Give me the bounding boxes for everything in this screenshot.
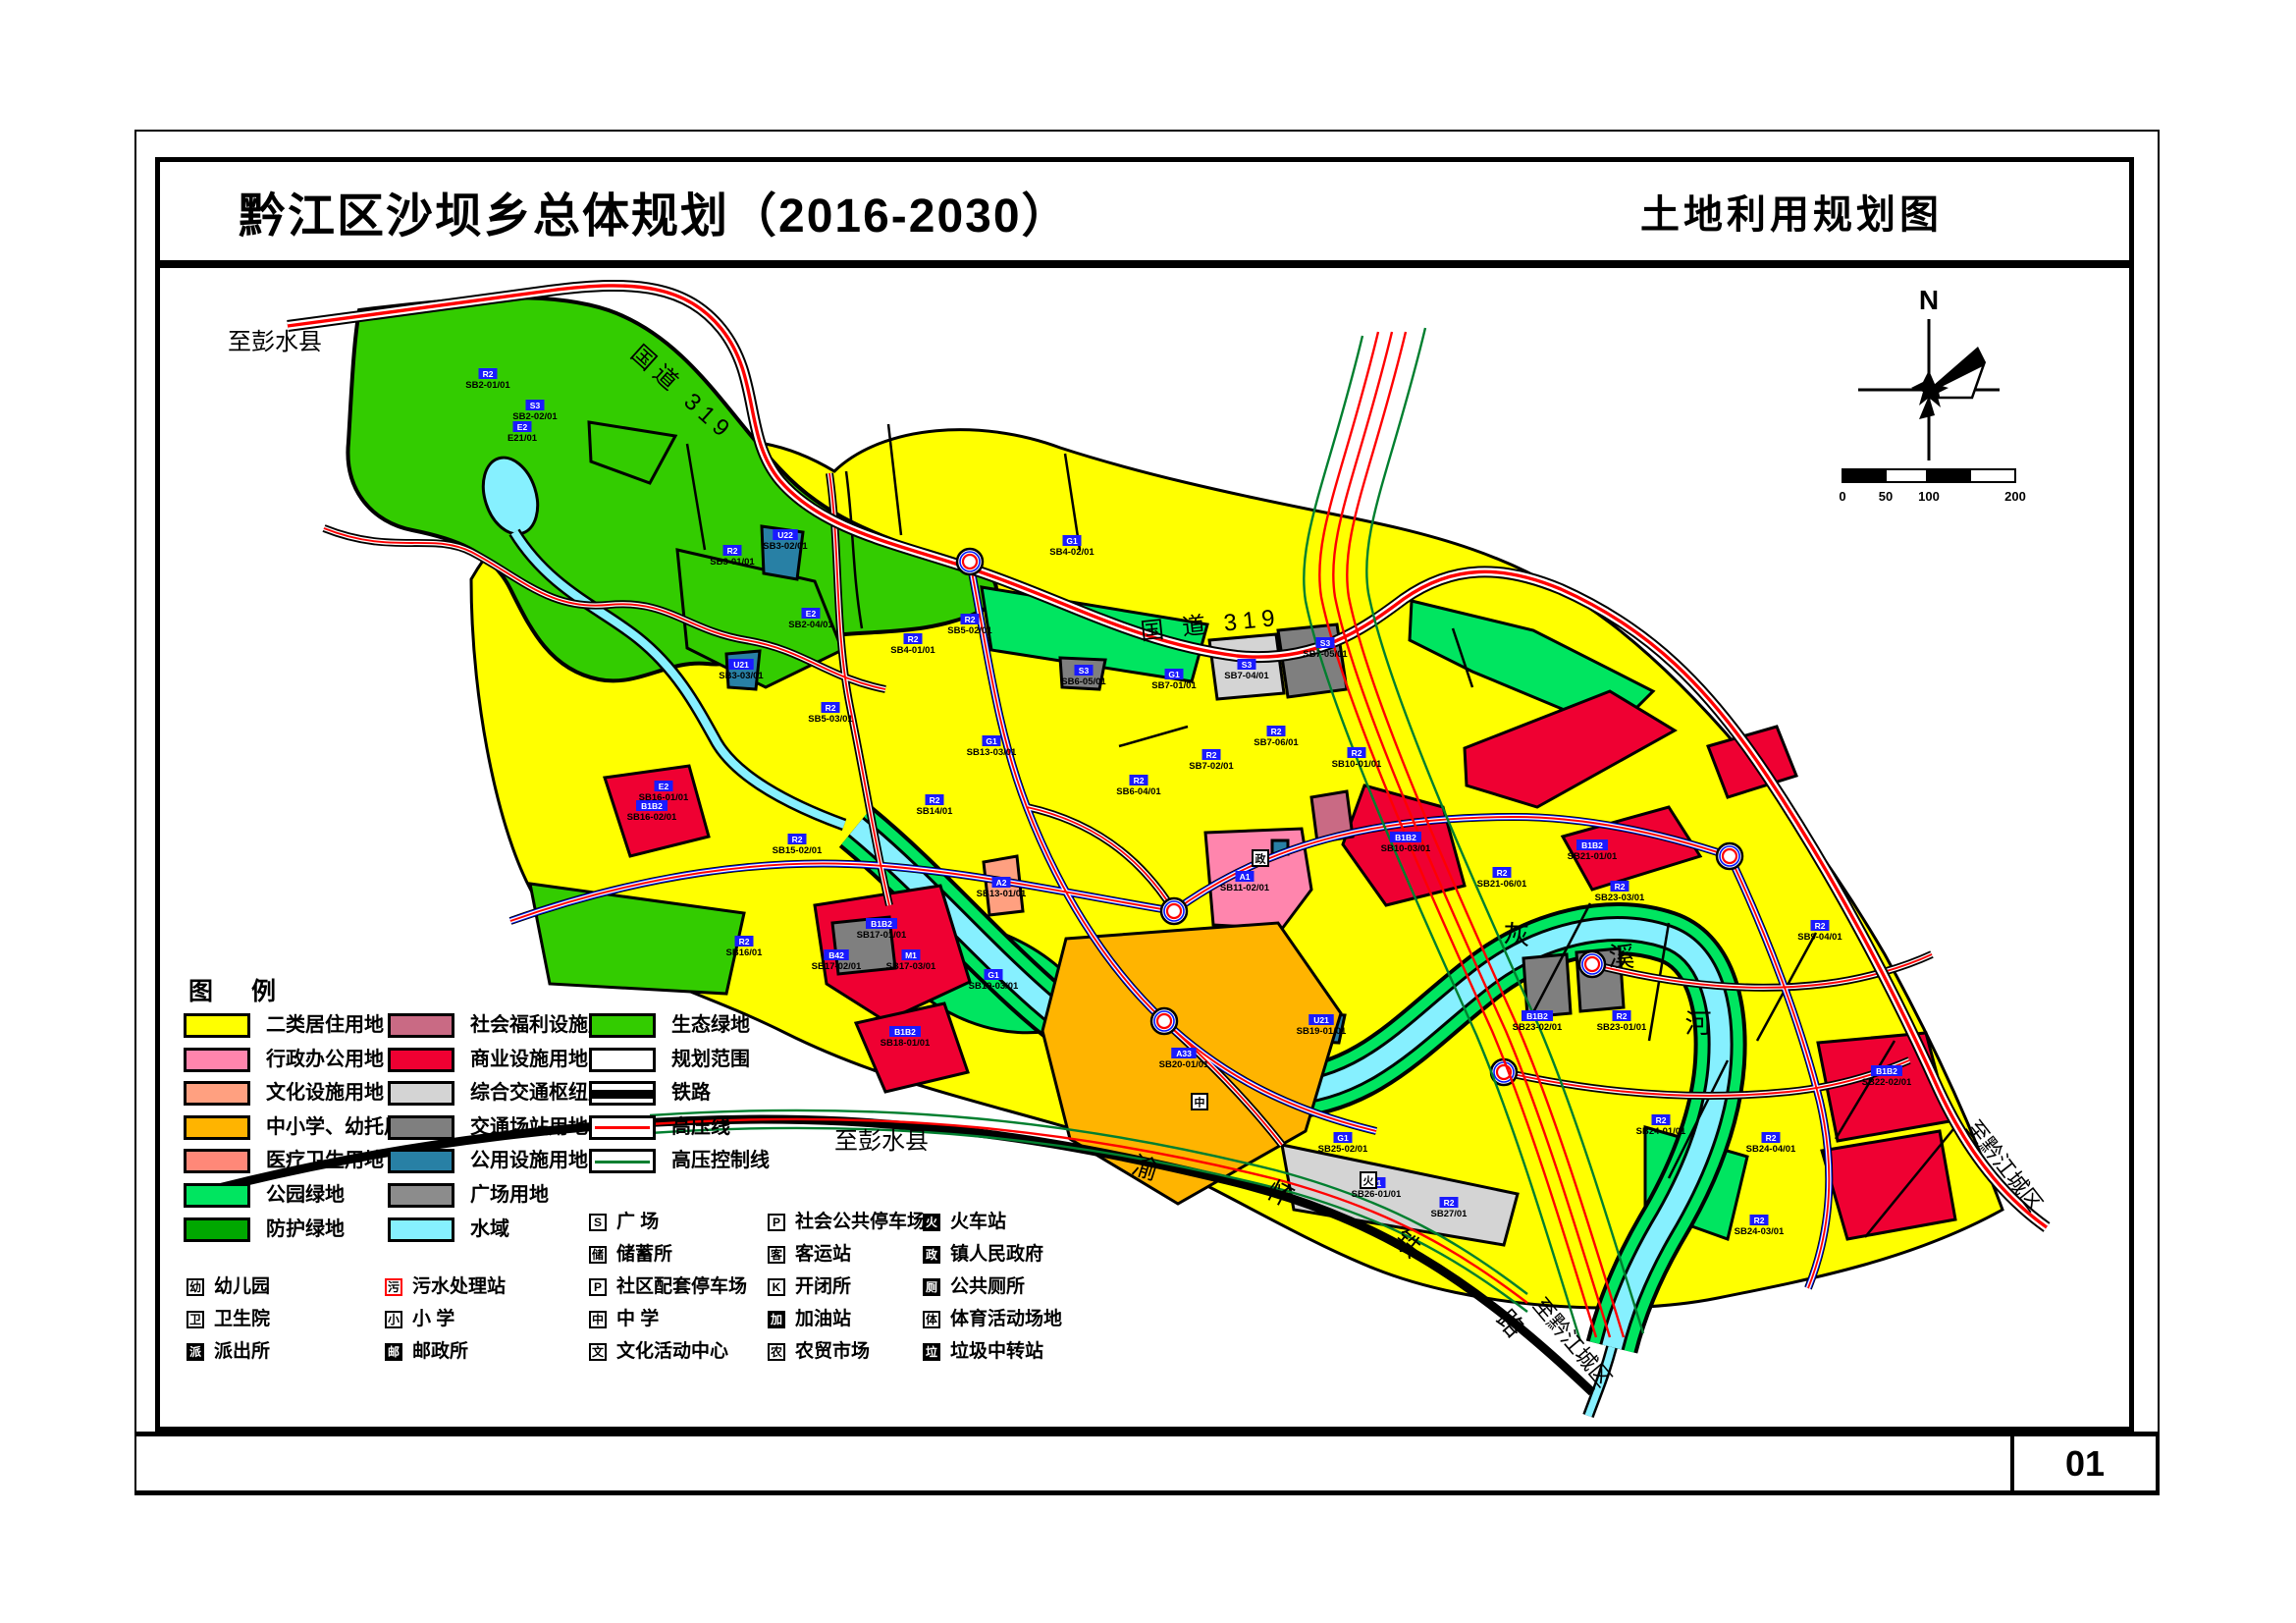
north-label: N — [1919, 285, 1939, 315]
svg-text:R2: R2 — [965, 615, 976, 624]
compass-rose: N — [1858, 285, 2000, 460]
svg-text:B1B2: B1B2 — [1876, 1066, 1897, 1076]
svg-text:SB21-06/01: SB21-06/01 — [1477, 879, 1527, 890]
svg-text:SB6-04/01: SB6-04/01 — [1116, 786, 1161, 797]
svg-text:SB7-01/01: SB7-01/01 — [1151, 680, 1197, 691]
svg-text:SB5-02/01: SB5-02/01 — [947, 625, 992, 636]
svg-text:U22: U22 — [777, 530, 793, 540]
road-label: 溪 — [1609, 943, 1635, 972]
page-number: 01 — [2010, 1432, 2160, 1495]
svg-text:R2: R2 — [739, 937, 750, 947]
svg-text:SB23-01/01: SB23-01/01 — [1597, 1022, 1647, 1033]
svg-text:SB2-02/01: SB2-02/01 — [512, 411, 558, 422]
svg-text:E2: E2 — [517, 422, 528, 432]
road-label: 至彭水县 — [228, 329, 322, 355]
svg-text:SB7-06/01: SB7-06/01 — [1254, 737, 1299, 748]
svg-text:SB14/01: SB14/01 — [917, 806, 954, 817]
svg-text:政: 政 — [1255, 852, 1267, 866]
svg-text:SB3-01/01: SB3-01/01 — [710, 557, 755, 568]
svg-text:U21: U21 — [733, 660, 749, 670]
svg-text:R2: R2 — [727, 546, 738, 556]
svg-text:A2: A2 — [996, 878, 1007, 888]
svg-text:G1: G1 — [1337, 1133, 1349, 1143]
svg-text:SB16/01: SB16/01 — [726, 947, 764, 958]
svg-text:SB20-01/01: SB20-01/01 — [1159, 1059, 1209, 1070]
svg-text:A1: A1 — [1240, 872, 1251, 882]
svg-text:SB19-03/01: SB19-03/01 — [969, 981, 1019, 992]
svg-text:B1B2: B1B2 — [641, 801, 663, 811]
scale-tick-label: 200 — [2004, 489, 2026, 504]
svg-text:SB11-02/01: SB11-02/01 — [1220, 883, 1270, 893]
svg-text:SB2-04/01: SB2-04/01 — [788, 620, 833, 630]
svg-text:SB25-02/01: SB25-02/01 — [1318, 1144, 1368, 1155]
svg-text:SB4-01/01: SB4-01/01 — [890, 645, 935, 656]
svg-text:R2: R2 — [1615, 882, 1626, 892]
road-label: 至彭水县 — [834, 1128, 929, 1155]
svg-text:B42: B42 — [828, 950, 844, 960]
svg-text:SB19-01/01: SB19-01/01 — [1297, 1026, 1347, 1037]
svg-text:G1: G1 — [986, 736, 997, 746]
svg-text:SB24-04/01: SB24-04/01 — [1746, 1144, 1796, 1155]
svg-text:SB5-03/01: SB5-03/01 — [808, 714, 853, 725]
svg-text:SB9-04/01: SB9-04/01 — [1797, 932, 1842, 943]
svg-text:R2: R2 — [1352, 748, 1362, 758]
svg-text:G1: G1 — [1168, 670, 1180, 679]
road-label: 河 — [1685, 1009, 1712, 1039]
svg-text:B1B2: B1B2 — [1526, 1011, 1548, 1021]
svg-text:SB10-03/01: SB10-03/01 — [1381, 843, 1431, 854]
svg-text:SB3-03/01: SB3-03/01 — [719, 671, 764, 681]
svg-text:S3: S3 — [530, 401, 541, 410]
road-label: 灰 — [1504, 921, 1530, 950]
map-poi-icon: 火 — [1361, 1172, 1376, 1188]
svg-text:SB7-05/01: SB7-05/01 — [1303, 649, 1348, 660]
svg-text:SB4-02/01: SB4-02/01 — [1049, 547, 1095, 558]
svg-text:R2: R2 — [1656, 1115, 1667, 1125]
land-use-map: 至彭水县国道 319国 道 319至彭水县渝怀铁路至黔江城区至黔江城区灰溪河 E… — [155, 263, 2134, 1432]
svg-text:U21: U21 — [1313, 1015, 1329, 1025]
svg-text:R2: R2 — [1815, 921, 1826, 931]
svg-text:G1: G1 — [988, 970, 999, 980]
svg-text:SB17-01/01: SB17-01/01 — [857, 930, 907, 941]
svg-text:R2: R2 — [1206, 750, 1217, 760]
scale-tick-label: 50 — [1879, 489, 1893, 504]
svg-text:G1: G1 — [1066, 536, 1078, 546]
svg-text:S3: S3 — [1242, 660, 1253, 670]
svg-text:R2: R2 — [792, 835, 803, 844]
svg-text:SB15-02/01: SB15-02/01 — [773, 845, 823, 856]
svg-text:B1B2: B1B2 — [1395, 833, 1416, 842]
svg-text:S3: S3 — [1320, 638, 1331, 648]
svg-text:SB13-01/01: SB13-01/01 — [977, 889, 1027, 899]
svg-text:B1B2: B1B2 — [894, 1027, 916, 1037]
svg-text:R2: R2 — [483, 369, 494, 379]
svg-text:中: 中 — [1195, 1096, 1205, 1109]
svg-text:R2: R2 — [1497, 868, 1508, 878]
svg-text:E21/01: E21/01 — [507, 433, 538, 444]
sheet-title: 黔江区沙坝乡总体规划（2016-2030） — [239, 177, 1071, 245]
svg-text:M1: M1 — [905, 950, 917, 960]
scale-tick-label: 0 — [1839, 489, 1845, 504]
title-bar: 黔江区沙坝乡总体规划（2016-2030） 土地利用规划图 — [155, 157, 2134, 265]
svg-text:SB21-01/01: SB21-01/01 — [1568, 851, 1618, 862]
svg-text:SB17-03/01: SB17-03/01 — [886, 961, 936, 972]
svg-text:R2: R2 — [1271, 727, 1282, 736]
svg-text:E2: E2 — [659, 782, 669, 791]
svg-text:S3: S3 — [1079, 666, 1090, 676]
svg-text:B1B2: B1B2 — [1581, 840, 1603, 850]
svg-text:SB22-02/01: SB22-02/01 — [1862, 1077, 1912, 1088]
svg-text:SB16-02/01: SB16-02/01 — [627, 812, 677, 823]
svg-text:SB27/01: SB27/01 — [1431, 1209, 1468, 1219]
svg-text:SB18-01/01: SB18-01/01 — [881, 1038, 931, 1049]
svg-text:R2: R2 — [1766, 1133, 1777, 1143]
svg-text:SB17-02/01: SB17-02/01 — [812, 961, 862, 972]
footer-bar — [134, 1432, 2160, 1495]
svg-text:SB7-02/01: SB7-02/01 — [1189, 761, 1234, 772]
svg-text:SB26-01/01: SB26-01/01 — [1352, 1189, 1402, 1200]
svg-text:SB24-01/01: SB24-01/01 — [1636, 1126, 1686, 1137]
map-title: 土地利用规划图 — [1640, 183, 1943, 240]
scale-bar: 050100200 — [1839, 469, 2025, 504]
svg-text:SB24-03/01: SB24-03/01 — [1735, 1226, 1785, 1237]
scale-tick-label: 100 — [1918, 489, 1940, 504]
svg-text:B1B2: B1B2 — [871, 919, 892, 929]
svg-text:火: 火 — [1363, 1175, 1375, 1188]
svg-text:R2: R2 — [908, 634, 919, 644]
svg-text:R2: R2 — [826, 703, 836, 713]
svg-text:R2: R2 — [930, 795, 940, 805]
svg-text:R2: R2 — [1134, 776, 1145, 785]
svg-text:R2: R2 — [1754, 1216, 1765, 1225]
svg-text:SB2-01/01: SB2-01/01 — [465, 380, 510, 391]
map-poi-icon: 政 — [1253, 850, 1268, 866]
svg-text:R2: R2 — [1444, 1198, 1455, 1208]
svg-text:E2: E2 — [806, 609, 817, 619]
map-poi-icon: 中 — [1192, 1094, 1207, 1109]
svg-text:SB6-05/01: SB6-05/01 — [1061, 676, 1106, 687]
svg-text:SB7-04/01: SB7-04/01 — [1224, 671, 1269, 681]
svg-text:R2: R2 — [1617, 1011, 1628, 1021]
svg-text:SB13-03/01: SB13-03/01 — [967, 747, 1017, 758]
svg-text:SB3-02/01: SB3-02/01 — [763, 541, 808, 552]
svg-text:A33: A33 — [1176, 1049, 1192, 1058]
svg-text:SB23-02/01: SB23-02/01 — [1513, 1022, 1563, 1033]
plan-sheet: 黔江区沙坝乡总体规划（2016-2030） 土地利用规划图 — [0, 0, 2296, 1623]
svg-text:SB10-01/01: SB10-01/01 — [1332, 759, 1382, 770]
svg-text:SB23-03/01: SB23-03/01 — [1595, 893, 1645, 903]
